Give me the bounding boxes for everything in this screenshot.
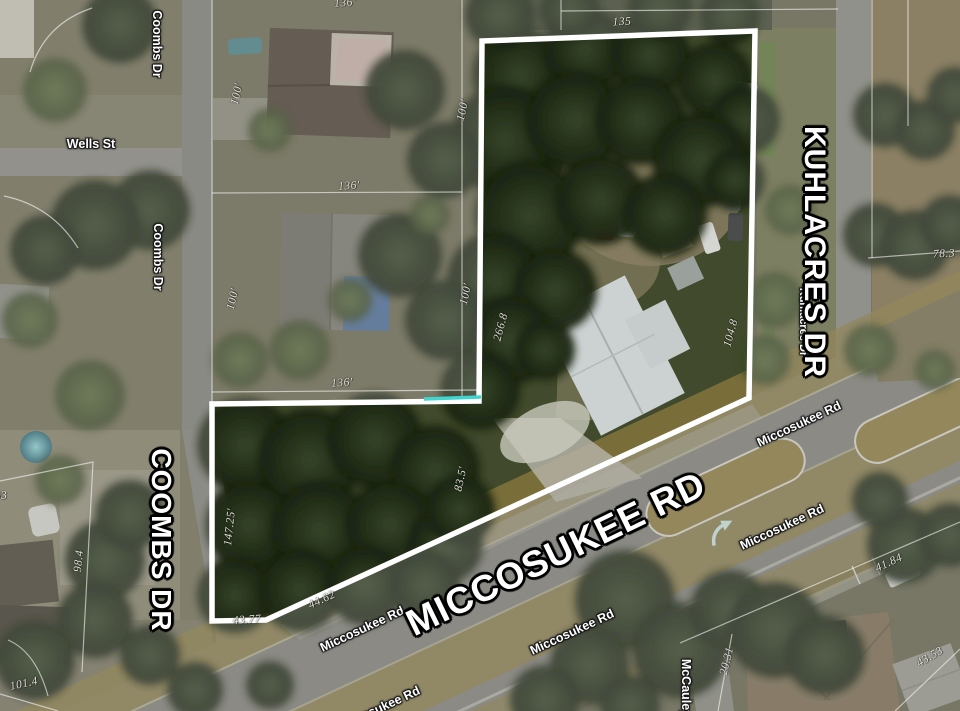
parcel-map: 136' 135 100' 100' 136' 100' 100' 136' 2… (0, 0, 960, 711)
parcel-highlight-segment (424, 397, 481, 399)
satellite-map-canvas (0, 0, 960, 711)
